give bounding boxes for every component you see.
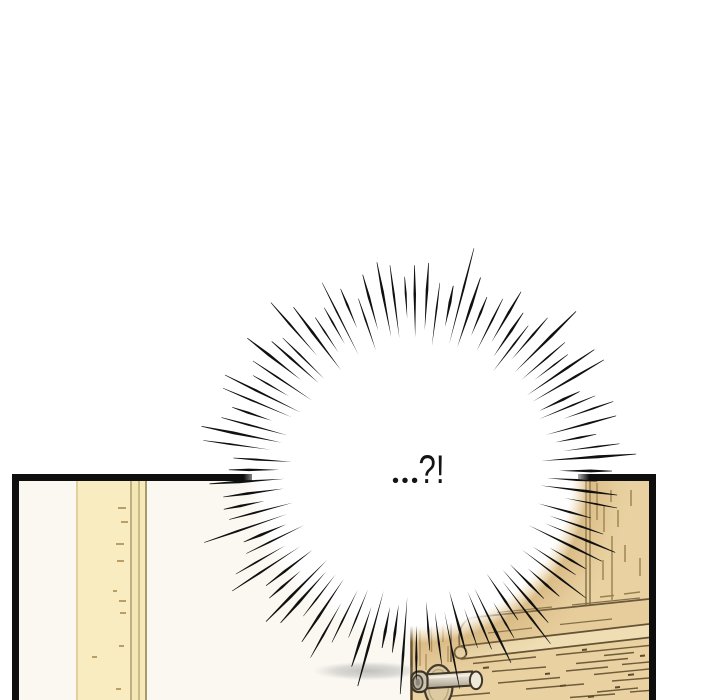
svg-text:?!: ?! — [419, 448, 445, 492]
